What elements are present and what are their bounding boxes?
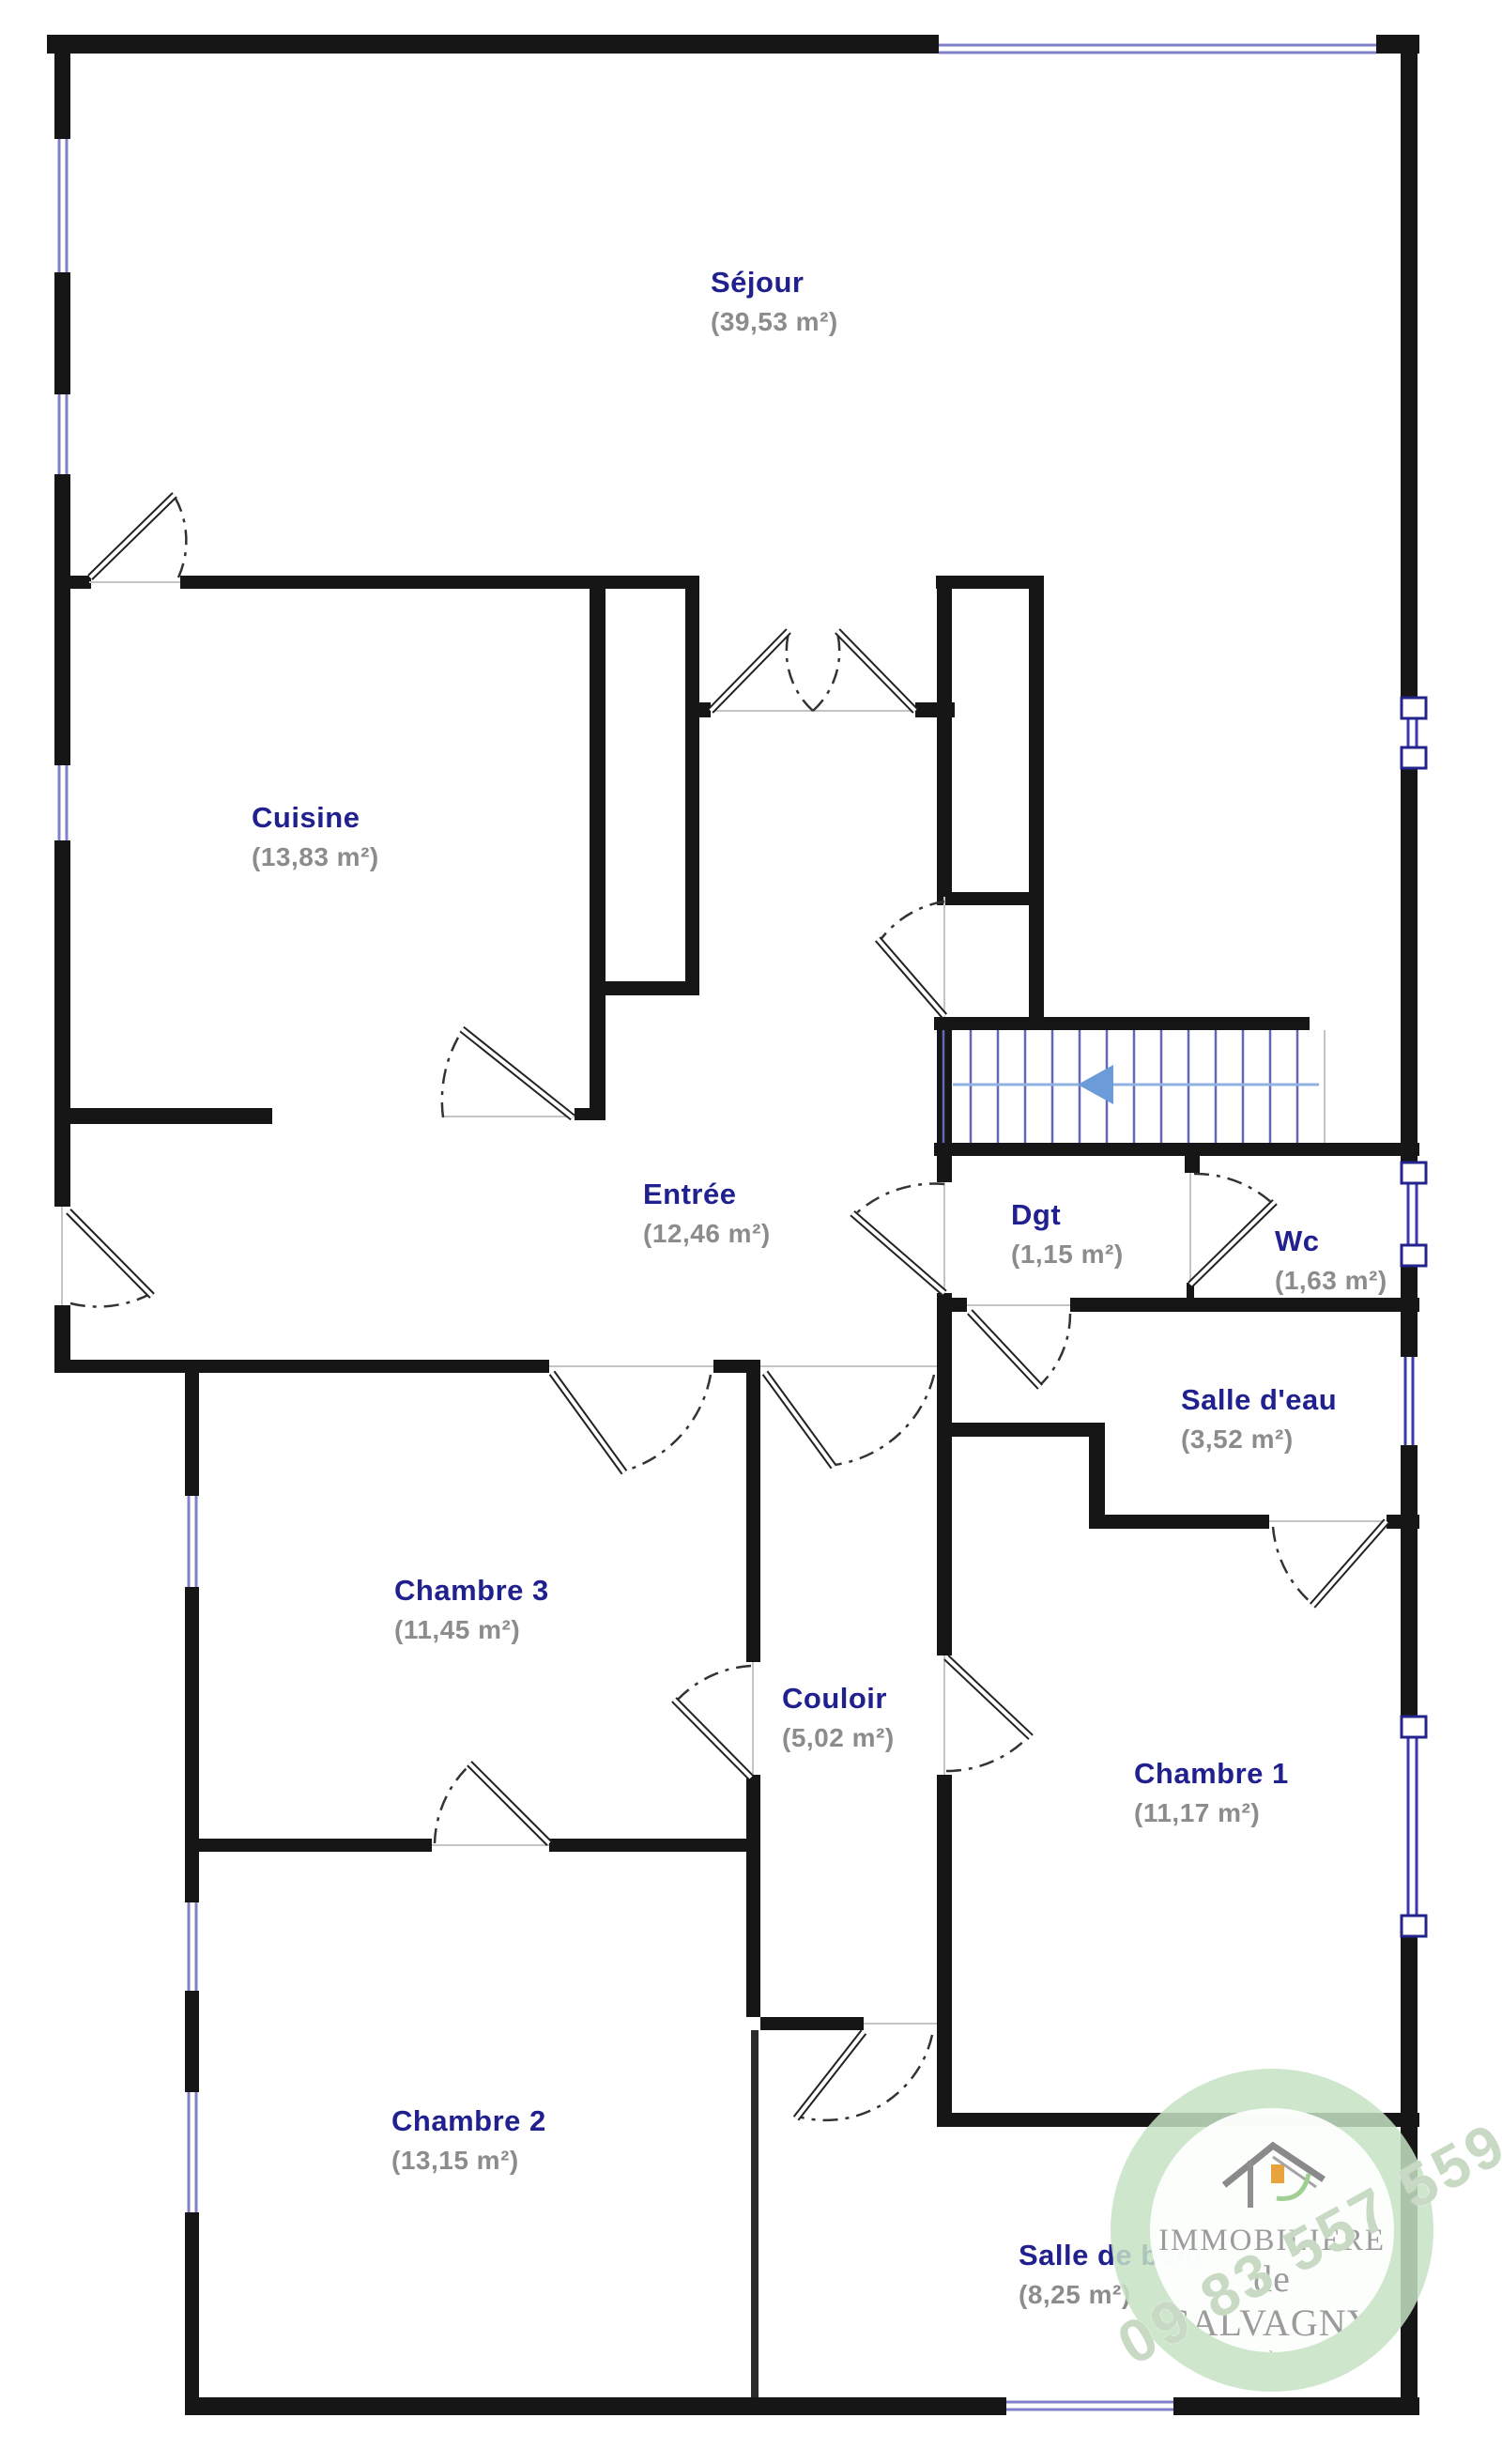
room-area: (39,53 m²): [711, 305, 838, 338]
room-name: Wc: [1275, 1224, 1387, 1260]
room-name: Chambre 2: [391, 2103, 546, 2140]
room-name: Dgt: [1011, 1197, 1124, 1234]
room-name: Chambre 1: [1134, 1756, 1289, 1793]
room-label-entree: Entrée (12,46 m²): [643, 1177, 771, 1250]
room-area: (11,45 m²): [394, 1613, 549, 1646]
room-label-chambre-3: Chambre 3 (11,45 m²): [394, 1573, 549, 1646]
room-area: (13,15 m²): [391, 2144, 546, 2177]
room-label-chambre-2: Chambre 2 (13,15 m²): [391, 2103, 546, 2177]
room-area: (5,02 m²): [782, 1721, 895, 1754]
stair-direction-arrow: [1078, 1065, 1113, 1104]
room-label-salle-d-eau: Salle d'eau (3,52 m²): [1181, 1382, 1337, 1455]
room-label-wc: Wc (1,63 m²): [1275, 1224, 1387, 1297]
room-area: (12,46 m²): [643, 1217, 771, 1250]
house-icon: [1211, 2136, 1333, 2211]
room-name: Entrée: [643, 1177, 771, 1213]
room-name: Cuisine: [252, 800, 379, 837]
room-name: Chambre 3: [394, 1573, 549, 1609]
floor-plan-page: Séjour (39,53 m²) Cuisine (13,83 m²) Ent…: [0, 0, 1502, 2464]
room-area: (11,17 m²): [1134, 1796, 1289, 1829]
staircase: [943, 1030, 1319, 1143]
room-label-cuisine: Cuisine (13,83 m²): [252, 800, 379, 873]
room-name: Séjour: [711, 265, 838, 301]
room-name: Salle d'eau: [1181, 1382, 1337, 1419]
room-label-dgt: Dgt (1,15 m²): [1011, 1197, 1124, 1270]
room-area: (1,63 m²): [1275, 1264, 1387, 1297]
room-name: Couloir: [782, 1681, 895, 1717]
room-area: (1,15 m²): [1011, 1238, 1124, 1270]
room-label-chambre-1: Chambre 1 (11,17 m²): [1134, 1756, 1289, 1829]
room-label-sejour: Séjour (39,53 m²): [711, 265, 838, 338]
room-area: (13,83 m²): [252, 840, 379, 873]
room-label-couloir: Couloir (5,02 m²): [782, 1681, 895, 1754]
room-area: (3,52 m²): [1181, 1423, 1337, 1455]
